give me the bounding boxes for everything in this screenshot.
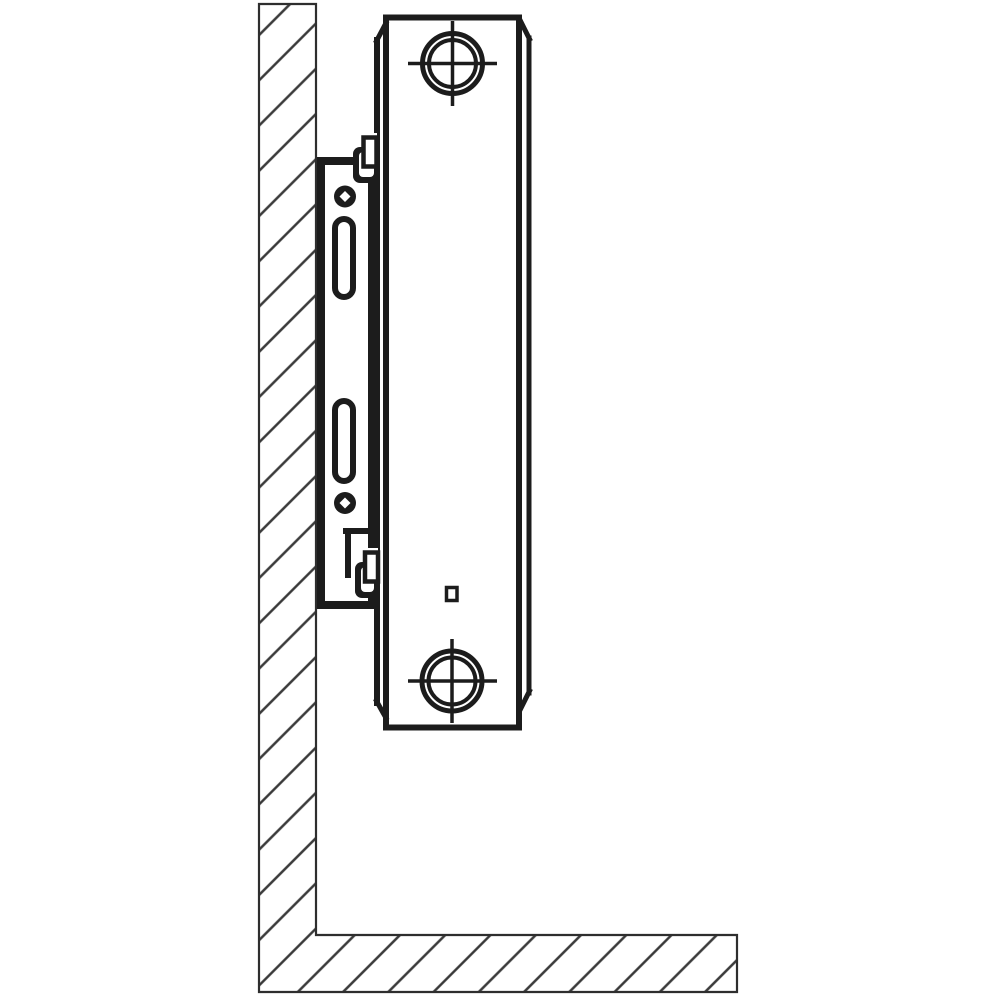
top-retaining-clip-tab <box>364 138 377 167</box>
shapes-root <box>259 4 737 992</box>
bracket-slot-lower <box>335 401 353 481</box>
bracket-slot-upper <box>335 219 353 297</box>
bracket-notch-left-edge <box>345 528 351 578</box>
radiator-wall-bracket-installation-diagram <box>0 0 1000 1000</box>
air-vent-square <box>447 588 458 601</box>
diagram-canvas <box>0 0 1000 1000</box>
bottom-retaining-clip-tab <box>365 553 378 582</box>
radiator-body <box>386 18 519 728</box>
